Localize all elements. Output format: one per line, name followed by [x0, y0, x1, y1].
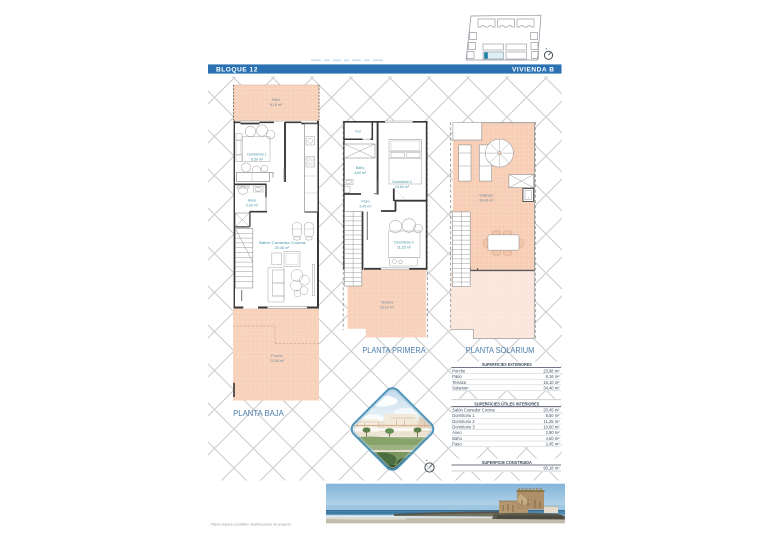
- svg-text:Dormitorio 2: Dormitorio 2: [394, 241, 414, 245]
- svg-text:4,60 m²: 4,60 m²: [354, 171, 367, 175]
- svg-text:Dormitorio 3: Dormitorio 3: [392, 180, 412, 184]
- svg-text:10,60 m²: 10,60 m²: [395, 185, 410, 189]
- svg-text:Dormitorio 1: Dormitorio 1: [452, 413, 475, 418]
- svg-text:VIVIENDA B: VIVIENDA B: [512, 67, 555, 74]
- svg-text:SUPERFICIES EXTERIORES: SUPERFICIES EXTERIORES: [482, 362, 532, 367]
- svg-text:Salón Comedor Cocina: Salón Comedor Cocina: [452, 408, 495, 413]
- svg-text:10,60 m²: 10,60 m²: [543, 425, 560, 430]
- svg-text:2,90 m²: 2,90 m²: [246, 204, 259, 208]
- svg-text:20,45 m²: 20,45 m²: [275, 246, 290, 250]
- svg-text:PLANTA BAJA: PLANTA BAJA: [233, 409, 284, 418]
- svg-text:20,45 m²: 20,45 m²: [543, 408, 560, 413]
- svg-text:6,50 m²: 6,50 m²: [251, 158, 264, 162]
- svg-text:90,18 m²: 90,18 m²: [543, 466, 560, 471]
- svg-text:11,25 m²: 11,25 m²: [397, 246, 412, 250]
- svg-text:16,10 m²: 16,10 m²: [543, 380, 560, 385]
- svg-text:2,45 m²: 2,45 m²: [546, 442, 561, 447]
- svg-text:Aseo: Aseo: [452, 430, 462, 435]
- svg-text:Paso: Paso: [361, 200, 369, 204]
- svg-text:SUPERFICIE CONSTRUIDA: SUPERFICIE CONSTRUIDA: [482, 460, 533, 465]
- svg-text:2,90 m²: 2,90 m²: [546, 430, 561, 435]
- svg-text:Solarium: Solarium: [479, 194, 493, 198]
- svg-text:23,98 m²: 23,98 m²: [543, 368, 560, 373]
- svg-text:Porche: Porche: [271, 354, 282, 358]
- svg-text:Aseo: Aseo: [248, 199, 256, 203]
- svg-text:BLOQUE 12: BLOQUE 12: [216, 67, 258, 74]
- svg-text:Terraza: Terraza: [452, 380, 466, 385]
- svg-text:Porche: Porche: [452, 368, 466, 373]
- svg-text:SUPERFICIES ÚTILES INTERIORES: SUPERFICIES ÚTILES INTERIORES: [474, 402, 539, 407]
- svg-text:4,60 m²: 4,60 m²: [546, 436, 561, 441]
- svg-text:PLANTA PRIMERA: PLANTA PRIMERA: [362, 346, 426, 355]
- svg-text:Dormitorio 1: Dormitorio 1: [247, 153, 267, 157]
- svg-text:Dormitorio 2: Dormitorio 2: [452, 419, 475, 424]
- svg-text:Solarium: Solarium: [452, 386, 469, 391]
- svg-text:2,45 m²: 2,45 m²: [359, 205, 372, 209]
- svg-text:PLANTA SOLARIUM: PLANTA SOLARIUM: [466, 346, 535, 355]
- svg-text:9,16 m²: 9,16 m²: [270, 103, 283, 107]
- svg-text:Terraza: Terraza: [381, 301, 393, 305]
- svg-text:Baño: Baño: [452, 436, 462, 441]
- svg-text:Patio: Patio: [452, 374, 462, 379]
- svg-text:9,16 m²: 9,16 m²: [546, 374, 561, 379]
- svg-text:Planos sujetos a posibles modi: Planos sujetos a posibles modificaciones…: [211, 523, 291, 527]
- svg-text:11,25 m²: 11,25 m²: [544, 419, 560, 424]
- svg-text:23,98 m²: 23,98 m²: [270, 359, 285, 363]
- svg-text:Baño: Baño: [356, 166, 364, 170]
- svg-text:Dormitorio 3: Dormitorio 3: [452, 425, 475, 430]
- svg-text:Salón Comedor Cocina: Salón Comedor Cocina: [259, 241, 307, 245]
- svg-text:Patio: Patio: [272, 98, 280, 102]
- svg-text:Paso: Paso: [452, 442, 462, 447]
- svg-text:8,50 m²: 8,50 m²: [546, 413, 561, 418]
- svg-text:Inst: Inst: [355, 130, 360, 134]
- svg-text:34,40 m²: 34,40 m²: [479, 199, 494, 203]
- svg-text:16,10 m²: 16,10 m²: [380, 306, 395, 310]
- svg-text:34,40 m²: 34,40 m²: [543, 386, 560, 391]
